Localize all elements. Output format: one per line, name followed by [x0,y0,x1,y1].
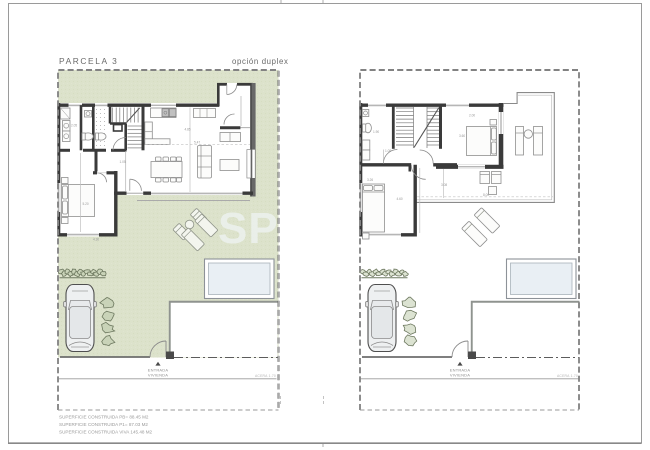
svg-text:ACERA 1.70: ACERA 1.70 [255,374,276,378]
svg-text:VIVIENDA: VIVIENDA [148,373,168,378]
svg-text:ACERA 1.70: ACERA 1.70 [557,374,578,378]
svg-text:5.20: 5.20 [83,202,89,206]
svg-text:3.60: 3.60 [459,134,465,138]
svg-text:SP: SP [218,204,279,253]
svg-text:2.00: 2.00 [469,114,475,118]
svg-text:3.08: 3.08 [441,183,447,187]
svg-text:SUPERFICIE CONSTRUIDA VIVA 145: SUPERFICIE CONSTRUIDA VIVA 145.48 M2 [59,429,153,434]
svg-text:1.90: 1.90 [373,130,379,134]
svg-text:1.08: 1.08 [385,149,391,153]
svg-text:4.60: 4.60 [397,197,403,201]
svg-text:8.00: 8.00 [483,193,489,197]
svg-text:VIVIENDA: VIVIENDA [450,373,470,378]
svg-text:SUPERFICIE CONSTRUIDA P1= 87.0: SUPERFICIE CONSTRUIDA P1= 87.03 M2 [59,422,148,427]
svg-text:4.30: 4.30 [93,238,99,242]
svg-text:SUPERFICIE CONSTRUIDA PB= 88.4: SUPERFICIE CONSTRUIDA PB= 88.45 M2 [59,415,149,420]
svg-text:3.26: 3.26 [367,178,373,182]
svg-text:5.47: 5.47 [194,141,200,145]
svg-text:PARCELA 3: PARCELA 3 [59,56,118,66]
svg-text:2.05: 2.05 [71,124,77,128]
svg-text:opción duplex: opción duplex [232,57,289,66]
svg-text:4.85: 4.85 [185,128,191,132]
svg-text:1.05: 1.05 [120,160,126,164]
